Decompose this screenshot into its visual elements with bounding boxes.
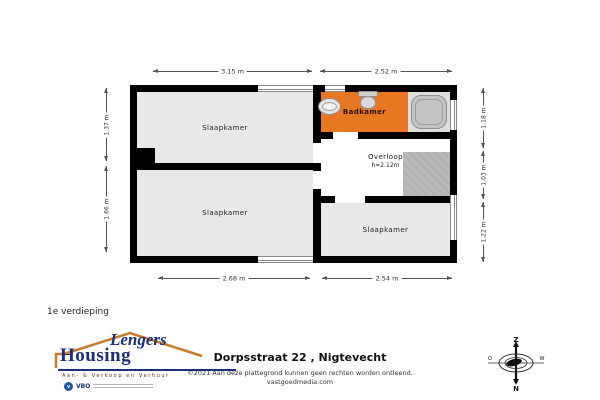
- door-opening: [313, 143, 321, 163]
- compass-icon: Z N O W: [486, 336, 546, 392]
- toilet-bowl: [360, 96, 376, 109]
- room-slaapkamer-bottom-right: Slaapkamer: [321, 203, 450, 256]
- room-label: Slaapkamer: [202, 209, 248, 217]
- dimension-label: 1.18 m: [481, 105, 488, 130]
- door-opening: [313, 171, 321, 189]
- dimension-right-lower: 1.22 m: [483, 202, 484, 262]
- dimension-label: 2.52 m: [372, 68, 401, 76]
- room-slaapkamer-top-left: Slaapkamer: [137, 92, 313, 163]
- dimension-label: 2.54 m: [373, 275, 402, 283]
- room-height-note: h=2.12m: [371, 162, 399, 169]
- window-icon: [258, 85, 313, 92]
- floor-label: 1e verdieping: [47, 307, 109, 317]
- floorplan-page: { "plan": { "rooms": [ {"id": "slaapkame…: [0, 0, 600, 400]
- dimension-right-middle: 1.03 m: [483, 151, 484, 199]
- dimension-label: 2.68 m: [220, 275, 249, 283]
- compass-n: N: [513, 385, 519, 392]
- dimension-label: 1.22 m: [481, 219, 488, 244]
- window-icon: [450, 100, 457, 130]
- compass-w: W: [540, 356, 545, 362]
- room-slaapkamer-bottom-left: Slaapkamer: [137, 170, 313, 256]
- compass-o: O: [488, 356, 492, 362]
- room-label: Badkamer: [343, 108, 386, 116]
- room-label: Overloop: [368, 153, 403, 161]
- window-icon: [325, 85, 345, 92]
- dimension-label: 1.03 m: [481, 162, 488, 187]
- bathtub-icon: [411, 95, 447, 129]
- room-label: Slaapkamer: [363, 226, 409, 234]
- door-opening: [333, 132, 358, 139]
- window-icon: [258, 256, 313, 263]
- floorplan: Slaapkamer Badkamer Overloop h=2.12m Sla…: [130, 85, 457, 263]
- compass-z: Z: [513, 336, 518, 344]
- door-opening: [335, 196, 365, 203]
- toilet-icon: [356, 91, 380, 109]
- dimension-right-upper: 1.18 m: [483, 88, 484, 148]
- stairs-icon: [403, 152, 450, 196]
- room-label: Slaapkamer: [202, 124, 248, 132]
- dimension-left-upper: 1.37 m: [106, 88, 107, 161]
- dimension-bottom-left: 2.68 m: [158, 278, 310, 279]
- dimension-bottom-right: 2.54 m: [322, 278, 452, 279]
- dimension-label: 1.66 m: [104, 196, 111, 221]
- window-icon: [450, 195, 457, 240]
- dimension-label: 3.15 m: [218, 68, 247, 76]
- dimension-label: 1.37 m: [104, 112, 111, 137]
- sink-icon: [318, 98, 341, 115]
- dimension-top-right: 2.52 m: [320, 71, 452, 72]
- dimension-top-left: 3.15 m: [153, 71, 312, 72]
- dimension-left-lower: 1.66 m: [106, 166, 107, 252]
- chimney-block: [137, 148, 155, 170]
